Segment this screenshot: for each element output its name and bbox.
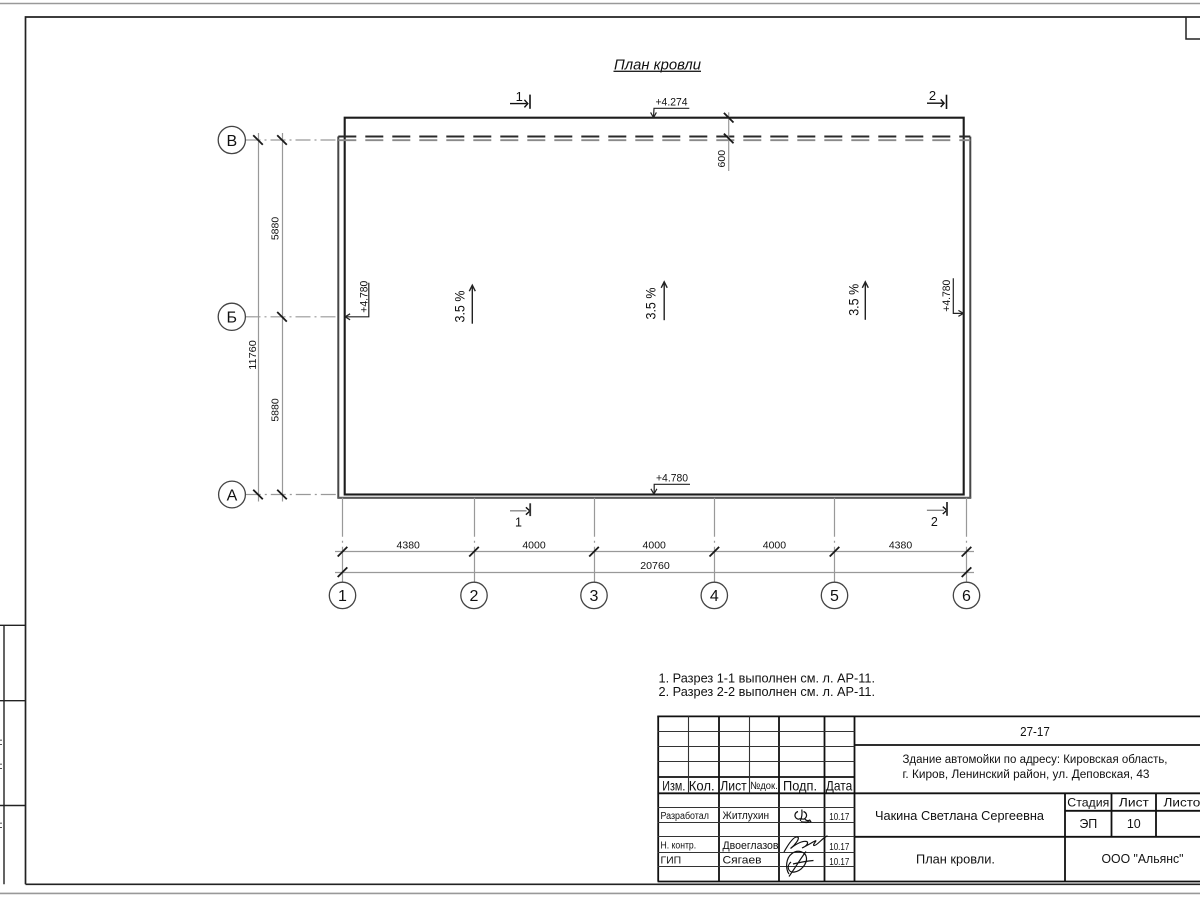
svg-text:+4.780: +4.780 — [359, 281, 371, 313]
svg-text:Инв. № подл.: Инв. № подл. — [0, 814, 3, 873]
svg-text:Листов: Листов — [1164, 795, 1200, 809]
svg-text:1: 1 — [338, 588, 347, 605]
svg-text:ЭП: ЭП — [1079, 817, 1097, 831]
svg-text:4000: 4000 — [522, 540, 545, 552]
svg-text:Здание автомойки по адресу: Ки: Здание автомойки по адресу: Кировская об… — [903, 754, 1168, 766]
svg-text:ГИП: ГИП — [661, 855, 682, 866]
svg-text:3.5 %: 3.5 % — [643, 288, 659, 320]
svg-text:Стадия: Стадия — [1067, 795, 1109, 809]
svg-text:5: 5 — [830, 588, 839, 605]
svg-text:10.17: 10.17 — [829, 841, 849, 853]
svg-text:Подп. и дата: Подп. и дата — [0, 724, 3, 781]
svg-text:4000: 4000 — [763, 540, 786, 552]
svg-text:27-17: 27-17 — [1020, 725, 1050, 739]
svg-text:5880: 5880 — [270, 398, 282, 421]
svg-text:10.17: 10.17 — [829, 856, 849, 868]
svg-text:600: 600 — [716, 150, 728, 168]
svg-text:Чакина Светлана Сергеевна: Чакина Светлана Сергеевна — [875, 809, 1045, 823]
svg-text:№док.: №док. — [750, 780, 778, 792]
svg-text:10: 10 — [1127, 817, 1141, 831]
svg-text:4000: 4000 — [643, 540, 666, 552]
svg-text:Кол.: Кол. — [689, 777, 715, 793]
svg-text:6: 6 — [962, 588, 971, 605]
svg-text:Лист: Лист — [720, 777, 747, 793]
svg-text:План кровли.: План кровли. — [916, 852, 995, 866]
svg-text:Б: Б — [227, 310, 238, 327]
svg-text:Подп.: Подп. — [783, 777, 817, 793]
svg-text:+4.780: +4.780 — [941, 280, 953, 312]
svg-text:1: 1 — [515, 516, 522, 530]
svg-text:Сягаев: Сягаев — [723, 855, 762, 867]
svg-text:11760: 11760 — [247, 340, 259, 370]
svg-text:Н. контр.: Н. контр. — [661, 840, 697, 851]
svg-text:3.5 %: 3.5 % — [846, 284, 862, 316]
svg-text:Взам. инв. №: Взам. инв. № — [0, 632, 3, 691]
svg-text:2: 2 — [470, 588, 479, 605]
svg-text:+4.274: +4.274 — [656, 96, 688, 108]
svg-text:1: 1 — [516, 89, 523, 104]
svg-text:4380: 4380 — [889, 540, 912, 552]
svg-text:В: В — [226, 133, 237, 150]
svg-text:2: 2 — [931, 515, 938, 529]
svg-text:20760: 20760 — [640, 560, 670, 572]
svg-text:Изм.: Изм. — [662, 777, 685, 793]
svg-text:5880: 5880 — [270, 217, 282, 240]
svg-text:2. Разрез 2-2 выполнен см. л.: 2. Разрез 2-2 выполнен см. л. АР-11. — [659, 684, 876, 699]
svg-text:2: 2 — [929, 88, 936, 103]
svg-text:Разработал: Разработал — [661, 811, 710, 822]
svg-text:Житлухин: Житлухин — [723, 810, 770, 822]
svg-text:Двоеглазов: Двоеглазов — [723, 840, 779, 852]
svg-text:Дата: Дата — [826, 777, 853, 793]
svg-text:А: А — [227, 487, 238, 504]
svg-text:+4.780: +4.780 — [656, 473, 688, 485]
svg-text:ООО "Альянс": ООО "Альянс" — [1102, 852, 1184, 866]
svg-text:Лист: Лист — [1119, 795, 1150, 809]
svg-text:4: 4 — [710, 588, 719, 605]
svg-text:3.5 %: 3.5 % — [451, 291, 467, 323]
svg-text:10.17: 10.17 — [829, 811, 849, 823]
svg-text:3: 3 — [590, 588, 599, 605]
svg-text:4380: 4380 — [397, 540, 420, 552]
svg-text:г. Киров, Ленинский район, ул.: г. Киров, Ленинский район, ул. Деповская… — [903, 769, 1150, 781]
